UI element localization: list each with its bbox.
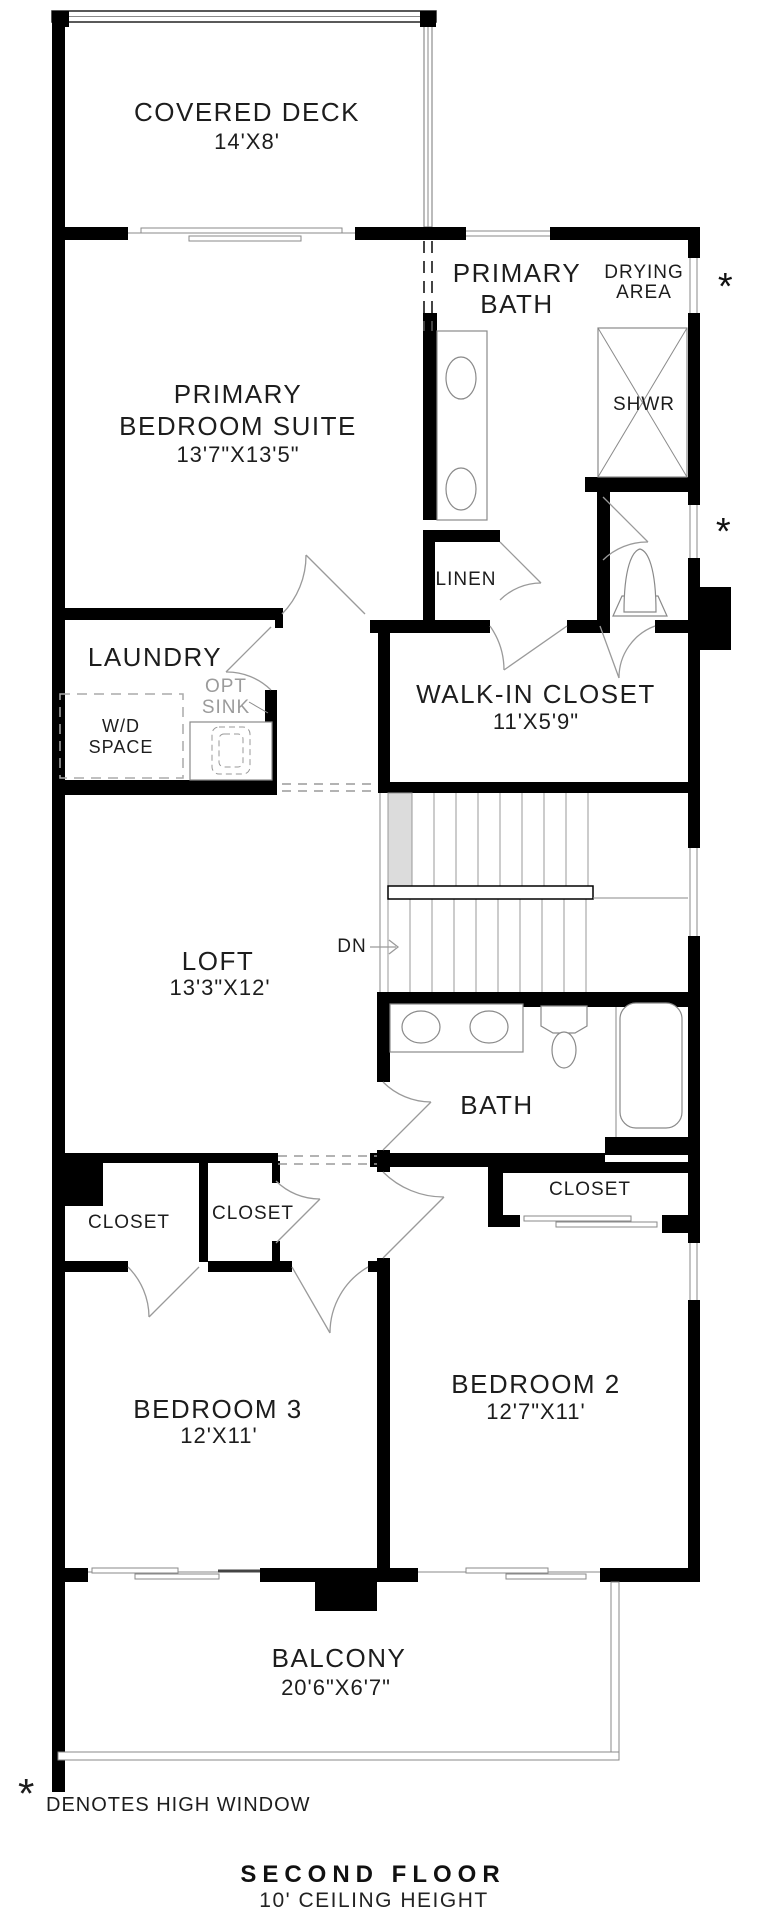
high-window <box>688 258 700 313</box>
legend-text: DENOTES HIGH WINDOW <box>46 1794 311 1817</box>
room-label-drying-area-1: DRYING <box>604 263 684 282</box>
opt-sink-label-2: SINK <box>202 698 250 717</box>
room-dims-loft: 13'3"X12' <box>169 977 270 999</box>
fixtures <box>60 328 687 1227</box>
closet-shelf <box>524 1216 657 1227</box>
room-dims-bedroom2: 12'7"X11' <box>486 1401 585 1423</box>
room-label-covered-deck: COVERED DECK <box>134 99 360 125</box>
window <box>688 1243 700 1300</box>
door-arc <box>600 626 655 678</box>
room-dims-covered-deck: 14'X8' <box>214 131 280 153</box>
washer-dryer-space <box>60 694 183 778</box>
room-label-closet-bedroom2: CLOSET <box>549 1180 631 1199</box>
room-label-primary-bedroom-1: PRIMARY <box>174 381 303 407</box>
door-arc <box>292 1267 368 1333</box>
high-window <box>688 505 700 558</box>
sink-fixture <box>470 1011 508 1043</box>
staircase <box>370 793 688 992</box>
room-label-primary-bedroom-2: BEDROOM SUITE <box>119 413 357 439</box>
floor-plan: COVERED DECK 14'X8' PRIMARY BATH DRYING … <box>0 0 763 1920</box>
high-window-asterisk: * <box>716 513 732 551</box>
room-label-bedroom2: BEDROOM 2 <box>451 1371 621 1397</box>
room-label-linen: LINEN <box>436 570 497 589</box>
bath-vanity <box>390 1004 523 1052</box>
room-label-laundry: LAUNDRY <box>88 644 222 670</box>
sink-fixture <box>446 468 476 510</box>
sink-fixture <box>446 357 476 399</box>
door-arc <box>282 555 365 614</box>
window <box>688 848 700 936</box>
legend-asterisk: * <box>18 1770 35 1818</box>
room-label-balcony: BALCONY <box>272 1645 407 1671</box>
room-label-primary-bath-1: PRIMARY <box>453 260 582 286</box>
door-arc <box>500 542 541 600</box>
room-label-bath: BATH <box>460 1092 533 1118</box>
room-dims-balcony: 20'6"X6'7" <box>281 1677 391 1699</box>
room-dims-walk-in-closet: 11'X5'9" <box>493 711 579 733</box>
floor-title: SECOND FLOOR <box>240 1863 505 1887</box>
sliding-door <box>418 1568 600 1579</box>
wd-space-label-2: SPACE <box>89 738 154 756</box>
window <box>466 227 550 240</box>
room-dims-bedroom3: 12'X11' <box>180 1425 257 1447</box>
high-window-asterisk: * <box>718 268 734 306</box>
room-label-closet-2: CLOSET <box>212 1204 294 1223</box>
stair-landing-tread <box>388 793 412 886</box>
stair-rail <box>388 886 593 899</box>
room-label-primary-bath-2: BATH <box>480 291 553 317</box>
toilet-fixture <box>613 549 667 616</box>
wd-space-label-1: W/D <box>102 717 140 735</box>
floor-subtitle: 10' CEILING HEIGHT <box>259 1890 488 1911</box>
bathtub-fixture <box>616 1003 682 1137</box>
room-label-loft: LOFT <box>182 948 254 974</box>
room-label-bedroom3: BEDROOM 3 <box>133 1396 303 1422</box>
door-arc <box>128 1267 199 1317</box>
door-arc <box>383 1172 444 1258</box>
door-arc <box>383 1082 431 1150</box>
stair-down-label: DN <box>337 937 366 956</box>
room-label-drying-area-2: AREA <box>616 283 672 302</box>
room-label-shower: SHWR <box>613 395 675 414</box>
sink-fixture <box>402 1011 440 1043</box>
door-arc <box>490 626 567 670</box>
toilet-fixture <box>541 1006 587 1068</box>
opt-sink-label-1: OPT <box>205 677 247 696</box>
sliding-door <box>128 228 355 241</box>
room-label-closet-1: CLOSET <box>88 1213 170 1232</box>
down-arrow-icon <box>370 940 398 954</box>
room-label-walk-in-closet: WALK-IN CLOSET <box>416 681 656 707</box>
window <box>88 1568 260 1579</box>
room-dims-primary-bedroom: 13'7"X13'5" <box>176 444 299 466</box>
